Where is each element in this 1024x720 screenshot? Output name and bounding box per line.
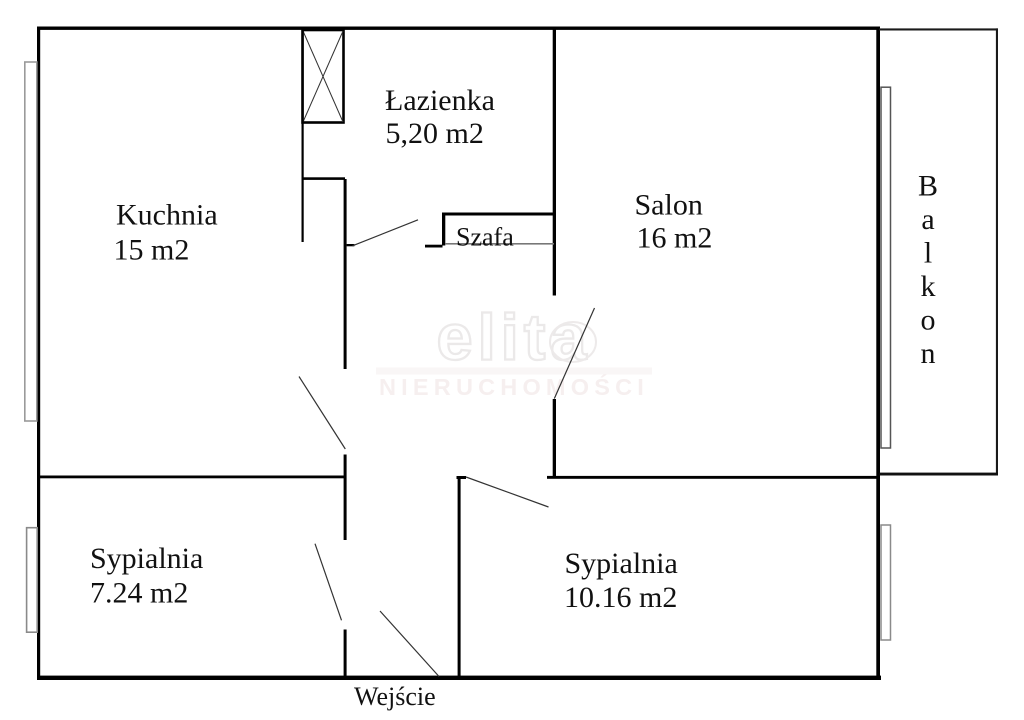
svg-text:Kuchnia: Kuchnia: [116, 198, 218, 231]
svg-text:l: l: [924, 237, 932, 270]
svg-text:10.16 m2: 10.16 m2: [564, 581, 677, 614]
svg-text:Salon: Salon: [635, 189, 703, 222]
svg-text:5,20 m2: 5,20 m2: [386, 117, 484, 150]
svg-text:16 m2: 16 m2: [637, 222, 713, 255]
svg-text:n: n: [921, 337, 936, 370]
svg-text:k: k: [921, 270, 936, 303]
svg-text:Sypialnia: Sypialnia: [565, 547, 678, 580]
svg-text:B: B: [918, 170, 938, 203]
svg-text:7.24 m2: 7.24 m2: [90, 577, 188, 610]
svg-text:NIERUCHOMOŚCI: NIERUCHOMOŚCI: [379, 373, 649, 400]
svg-text:Sypialnia: Sypialnia: [90, 542, 203, 575]
svg-text:Wejście: Wejście: [354, 682, 436, 711]
svg-text:a: a: [921, 203, 934, 236]
svg-text:Szafa: Szafa: [456, 223, 514, 252]
svg-text:o: o: [921, 304, 936, 337]
svg-text:15 m2: 15 m2: [114, 233, 190, 266]
svg-text:Łazienka: Łazienka: [385, 84, 495, 117]
